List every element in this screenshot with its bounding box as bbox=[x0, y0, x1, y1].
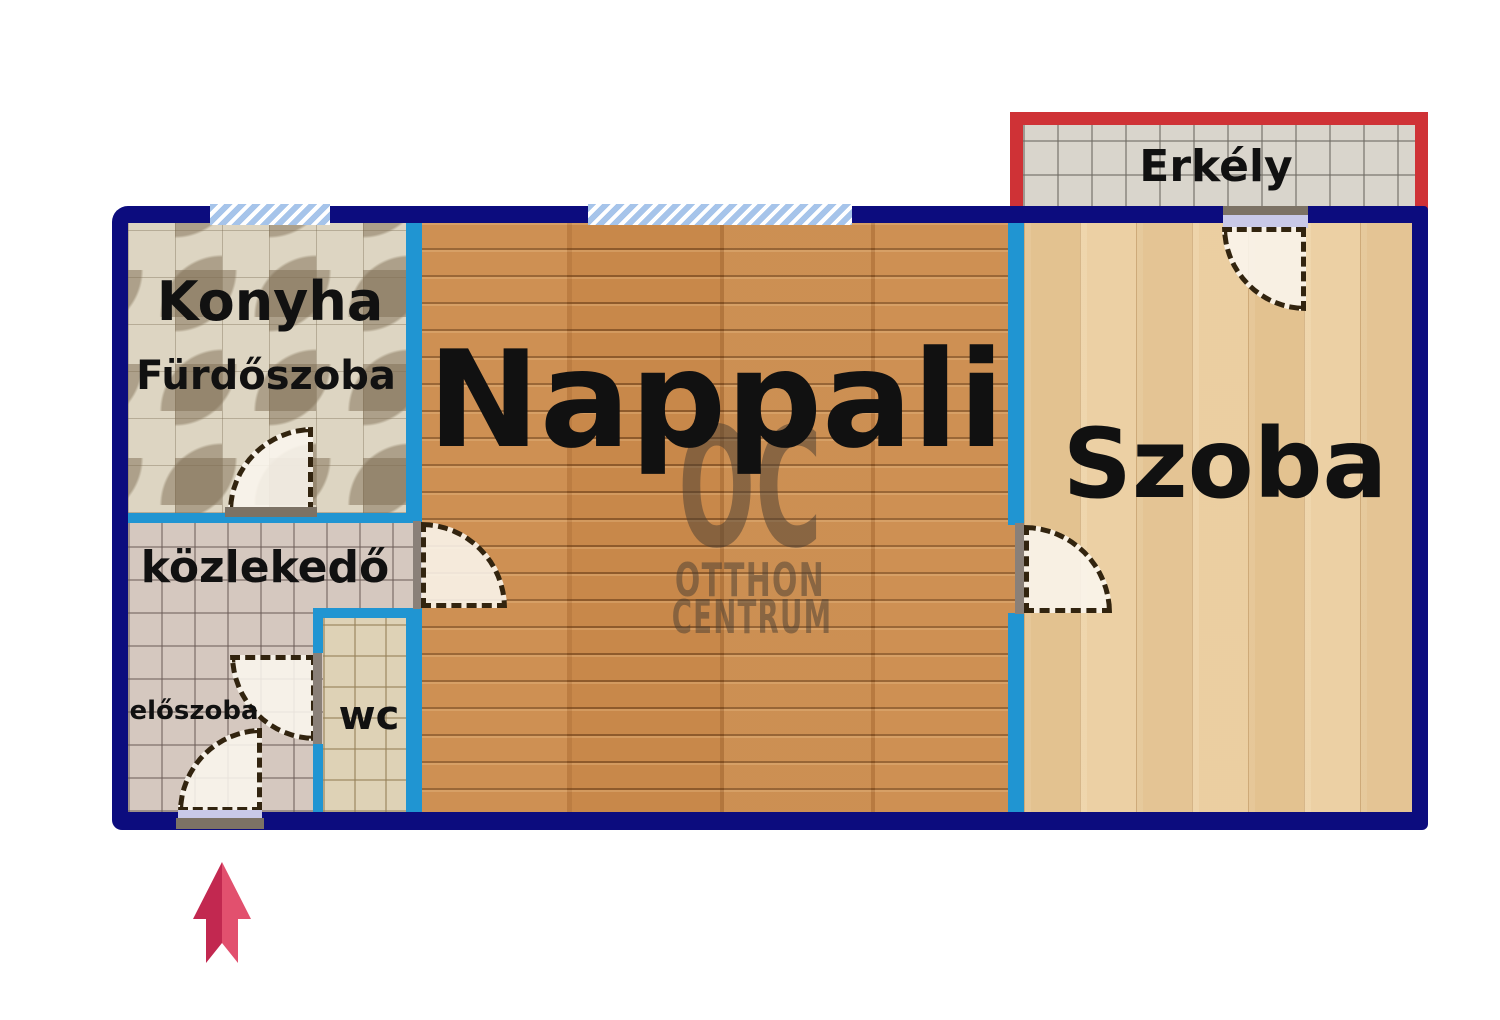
wall-nappali-szoba-bottom bbox=[1008, 613, 1024, 812]
window-nappali bbox=[588, 204, 852, 225]
wc-door-jamb bbox=[313, 653, 322, 744]
wall-left-nappali-top bbox=[406, 223, 422, 522]
window-konyha bbox=[210, 204, 330, 225]
entrance-door-threshold bbox=[176, 818, 264, 829]
watermark-line-centrum: CENTRUM bbox=[672, 594, 833, 640]
room-label-erkely: Erkély bbox=[1139, 145, 1292, 189]
room-label-konyha: Konyha bbox=[157, 275, 384, 329]
entrance-door-leaf bbox=[178, 810, 262, 818]
room-label-kozlekedo: közlekedő bbox=[141, 546, 390, 590]
wall-wc-top bbox=[313, 608, 422, 618]
szoba-door-jamb bbox=[1015, 523, 1024, 614]
floor-plan: Erkély OC OTTHON CENTRUM Konyha Fürdőszo… bbox=[0, 0, 1500, 1020]
room-label-wc: wc bbox=[339, 696, 400, 736]
wall-wc-left-lower bbox=[313, 744, 323, 812]
nappali-door-jamb bbox=[413, 521, 421, 609]
wall-wc-left-upper bbox=[313, 618, 323, 653]
balcony-door-bar bbox=[1223, 206, 1308, 215]
wall-left-nappali-bottom bbox=[406, 608, 422, 812]
room-label-eloszoba: előszoba bbox=[129, 698, 258, 724]
room-label-furdoszoba: Fürdőszoba bbox=[136, 356, 396, 396]
balcony-frame: Erkély bbox=[1010, 112, 1428, 210]
wall-nappali-szoba-top bbox=[1008, 223, 1024, 525]
entrance-arrow-icon bbox=[185, 855, 259, 970]
room-label-szoba: Szoba bbox=[1063, 416, 1387, 512]
konyha-door-threshold bbox=[225, 507, 317, 517]
room-label-nappali: Nappali bbox=[428, 333, 1005, 467]
